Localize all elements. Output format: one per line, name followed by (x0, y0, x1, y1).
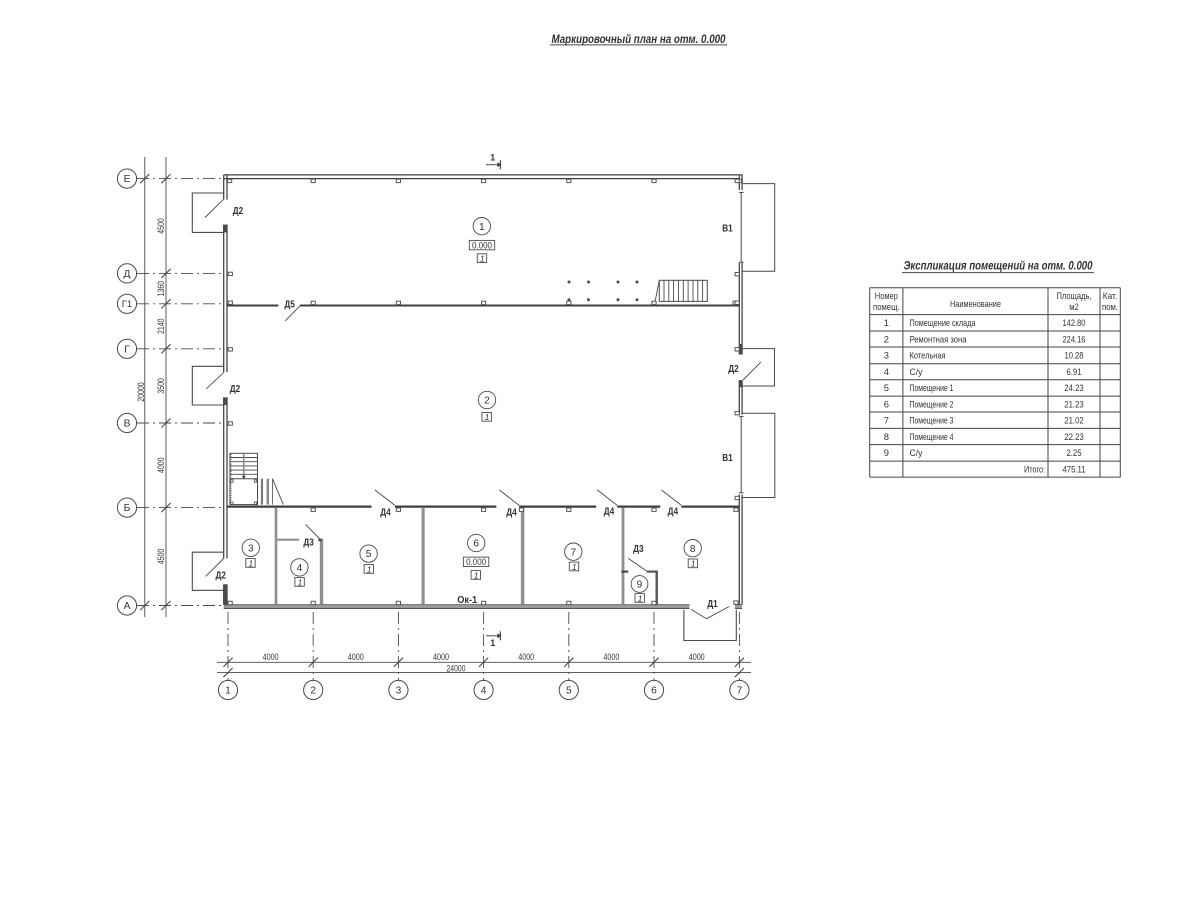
svg-text:1: 1 (884, 317, 889, 328)
svg-text:2.25: 2.25 (1067, 447, 1082, 458)
svg-text:Г1: Г1 (122, 299, 133, 309)
svg-text:Помещение 2: Помещение 2 (910, 398, 954, 409)
svg-text:6.91: 6.91 (1067, 366, 1082, 377)
svg-text:6: 6 (651, 686, 657, 697)
svg-text:Номер: Номер (875, 291, 898, 301)
svg-text:4000: 4000 (156, 458, 167, 474)
svg-text:Итого:: Итого: (1024, 463, 1045, 474)
svg-text:1: 1 (474, 570, 479, 580)
svg-text:помещ.: помещ. (873, 302, 900, 312)
svg-text:6: 6 (473, 539, 479, 550)
svg-text:9: 9 (884, 447, 889, 458)
svg-text:С/у: С/у (910, 366, 923, 377)
svg-text:2: 2 (884, 333, 889, 344)
svg-text:Д2: Д2 (233, 206, 244, 217)
svg-text:6: 6 (884, 398, 889, 409)
svg-text:21.23: 21.23 (1064, 398, 1084, 409)
svg-text:7: 7 (737, 686, 743, 697)
svg-text:4500: 4500 (156, 549, 167, 565)
svg-text:Д: Д (124, 269, 131, 280)
svg-text:В1: В1 (722, 453, 733, 464)
svg-text:5: 5 (566, 686, 572, 697)
svg-text:5: 5 (366, 549, 372, 560)
svg-text:пом.: пом. (1102, 302, 1118, 312)
svg-text:В1: В1 (722, 223, 733, 234)
svg-text:Б: Б (124, 503, 131, 514)
svg-text:Помещение 3: Помещение 3 (910, 415, 954, 426)
svg-text:Г: Г (124, 344, 130, 355)
svg-text:Д4: Д4 (380, 508, 391, 519)
svg-text:3500: 3500 (156, 378, 167, 394)
svg-text:7: 7 (570, 547, 576, 558)
svg-text:2: 2 (310, 686, 316, 697)
svg-text:4000: 4000 (518, 652, 534, 663)
svg-text:Котельная: Котельная (910, 350, 946, 361)
svg-text:4000: 4000 (603, 652, 619, 663)
svg-text:Ремонтная зона: Ремонтная зона (910, 333, 968, 344)
svg-text:224.16: 224.16 (1063, 333, 1086, 344)
svg-text:Д4: Д4 (506, 508, 517, 519)
svg-text:0.000: 0.000 (472, 241, 492, 251)
svg-text:1: 1 (638, 593, 643, 603)
svg-text:Маркировочный план на отм. 0.0: Маркировочный план на отм. 0.000 (552, 32, 726, 46)
svg-text:1: 1 (485, 412, 490, 422)
svg-text:4000: 4000 (263, 652, 279, 663)
svg-text:Помещение 4: Помещение 4 (910, 431, 954, 442)
svg-text:Д5: Д5 (284, 299, 295, 310)
svg-text:1: 1 (479, 222, 485, 233)
svg-text:9: 9 (637, 580, 643, 591)
svg-text:2: 2 (484, 396, 490, 407)
svg-text:2140: 2140 (156, 319, 167, 335)
svg-text:8: 8 (884, 431, 889, 442)
svg-text:3: 3 (248, 543, 254, 554)
svg-text:24.23: 24.23 (1064, 382, 1084, 393)
svg-text:Д2: Д2 (230, 384, 241, 395)
svg-text:4: 4 (884, 366, 889, 377)
svg-text:4000: 4000 (433, 652, 449, 663)
svg-text:Кат.: Кат. (1103, 291, 1118, 301)
svg-text:1360: 1360 (156, 281, 167, 297)
svg-text:475.11: 475.11 (1063, 463, 1086, 474)
svg-text:Д2: Д2 (728, 364, 739, 375)
svg-text:Помещение 1: Помещение 1 (910, 382, 954, 393)
svg-text:1: 1 (225, 686, 231, 697)
svg-text:Д4: Д4 (668, 506, 679, 517)
svg-text:24000: 24000 (447, 664, 466, 675)
svg-text:1: 1 (691, 559, 696, 569)
svg-text:С/у: С/у (910, 447, 923, 458)
svg-text:4000: 4000 (689, 652, 705, 663)
svg-text:Помещение склада: Помещение склада (910, 317, 977, 328)
svg-text:Д1: Д1 (707, 599, 718, 610)
svg-text:А: А (124, 601, 131, 612)
svg-text:Экспликация помещений на отм.: Экспликация помещений на отм. 0.000 (904, 258, 1093, 272)
svg-text:Ок-1: Ок-1 (457, 595, 478, 606)
svg-text:м2: м2 (1069, 302, 1079, 312)
svg-text:Д2: Д2 (215, 570, 226, 581)
svg-text:3: 3 (884, 350, 889, 361)
svg-text:22.23: 22.23 (1064, 431, 1084, 442)
svg-text:Д4: Д4 (604, 506, 615, 517)
svg-text:4500: 4500 (156, 218, 167, 234)
svg-text:4: 4 (481, 686, 487, 697)
svg-text:1: 1 (490, 638, 495, 648)
svg-text:Д3: Д3 (633, 544, 644, 555)
svg-text:0.000: 0.000 (466, 557, 486, 567)
svg-text:5: 5 (884, 382, 889, 393)
svg-text:1: 1 (367, 564, 372, 574)
svg-text:1: 1 (298, 577, 303, 587)
svg-text:8: 8 (690, 544, 696, 555)
svg-text:1: 1 (248, 558, 253, 568)
svg-text:142.80: 142.80 (1063, 317, 1086, 328)
svg-text:1: 1 (572, 562, 577, 572)
svg-text:Площадь,: Площадь, (1057, 291, 1092, 301)
svg-text:В: В (124, 419, 131, 430)
svg-text:1: 1 (490, 153, 495, 163)
svg-text:10.28: 10.28 (1065, 350, 1084, 361)
svg-text:3: 3 (396, 686, 402, 697)
svg-text:4: 4 (297, 563, 303, 574)
svg-text:21.02: 21.02 (1064, 415, 1084, 426)
svg-text:4000: 4000 (348, 652, 364, 663)
svg-text:Наименование: Наименование (950, 299, 1001, 309)
svg-text:20000: 20000 (136, 382, 147, 402)
svg-text:1: 1 (480, 254, 485, 264)
svg-text:Е: Е (124, 174, 131, 185)
svg-text:7: 7 (884, 415, 889, 426)
svg-text:Д3: Д3 (303, 537, 314, 548)
